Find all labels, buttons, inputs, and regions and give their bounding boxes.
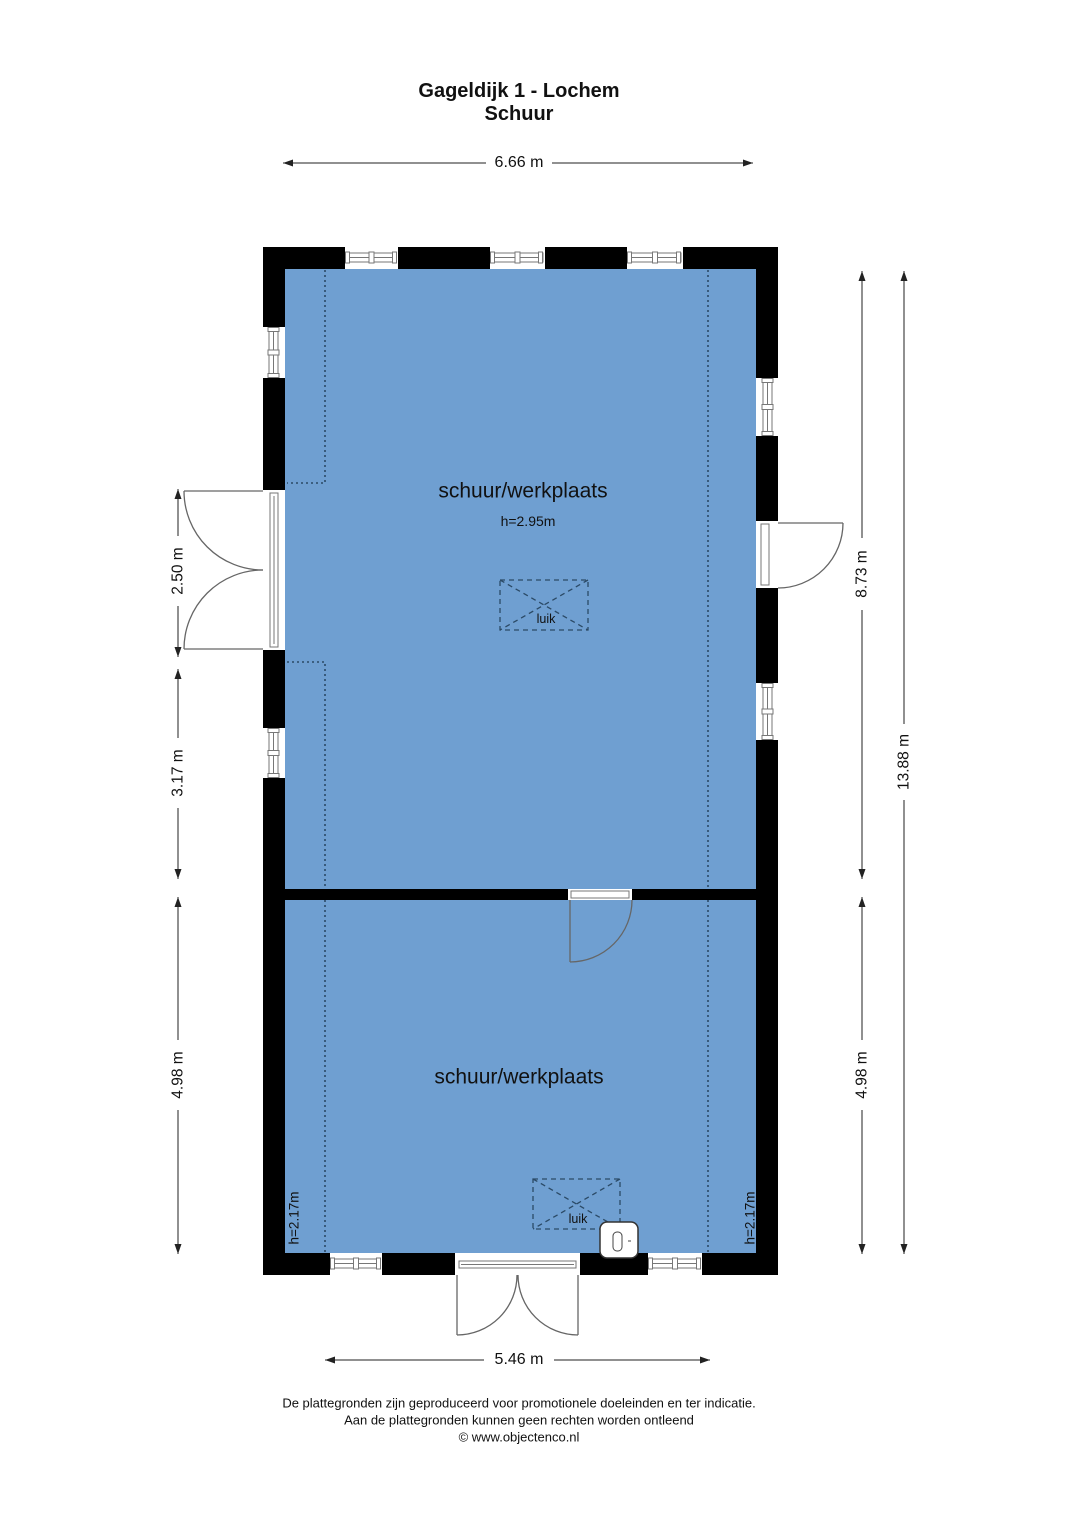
dimension-right-total: 13.88 m [896,734,912,790]
toilet-fixture [600,1222,638,1258]
dimension-top-width: 6.66 m [495,155,544,171]
single-door-right-arc [778,523,843,588]
floorplan-page: Gageldijk 1 - Lochem Schuur 6.66 m schuu… [0,0,1080,1527]
page-subtitle: Schuur [485,104,554,124]
room-label-upper: schuur/werkplaats [438,481,607,502]
dimension-bottom-width: 5.46 m [495,1352,544,1368]
luik-label-upper: luik [537,613,556,626]
eave-height-right: h=2.17m [743,1192,757,1245]
room-label-lower: schuur/werkplaats [434,1067,603,1088]
double-door-left-arc [184,491,263,570]
room-height-upper: h=2.95m [501,514,556,528]
footer-disclaimer-1: De plattegronden zijn geproduceerd voor … [282,1397,755,1410]
footer-copyright: © www.objectenco.nl [459,1431,580,1444]
floorplan-drawing [0,0,1080,1527]
eave-height-left: h=2.17m [287,1192,301,1245]
luik-label-lower: luik [569,1213,588,1226]
dimension-right-1: 8.73 m [854,550,870,597]
page-title: Gageldijk 1 - Lochem [418,81,619,101]
floor-fill [285,269,756,1253]
double-door-left-arc [184,570,263,649]
double-door-bottom-arc [518,1275,578,1335]
dimension-right-2: 4.98 m [854,1051,870,1098]
dimension-left-1: 2.50 m [170,547,186,594]
wall-divider [285,889,756,900]
dimension-left-3: 4.98 m [170,1051,186,1098]
double-door-bottom-arc [457,1275,517,1335]
footer-disclaimer-2: Aan de plattegronden kunnen geen rechten… [344,1414,694,1427]
dimension-left-2: 3.17 m [170,749,186,796]
